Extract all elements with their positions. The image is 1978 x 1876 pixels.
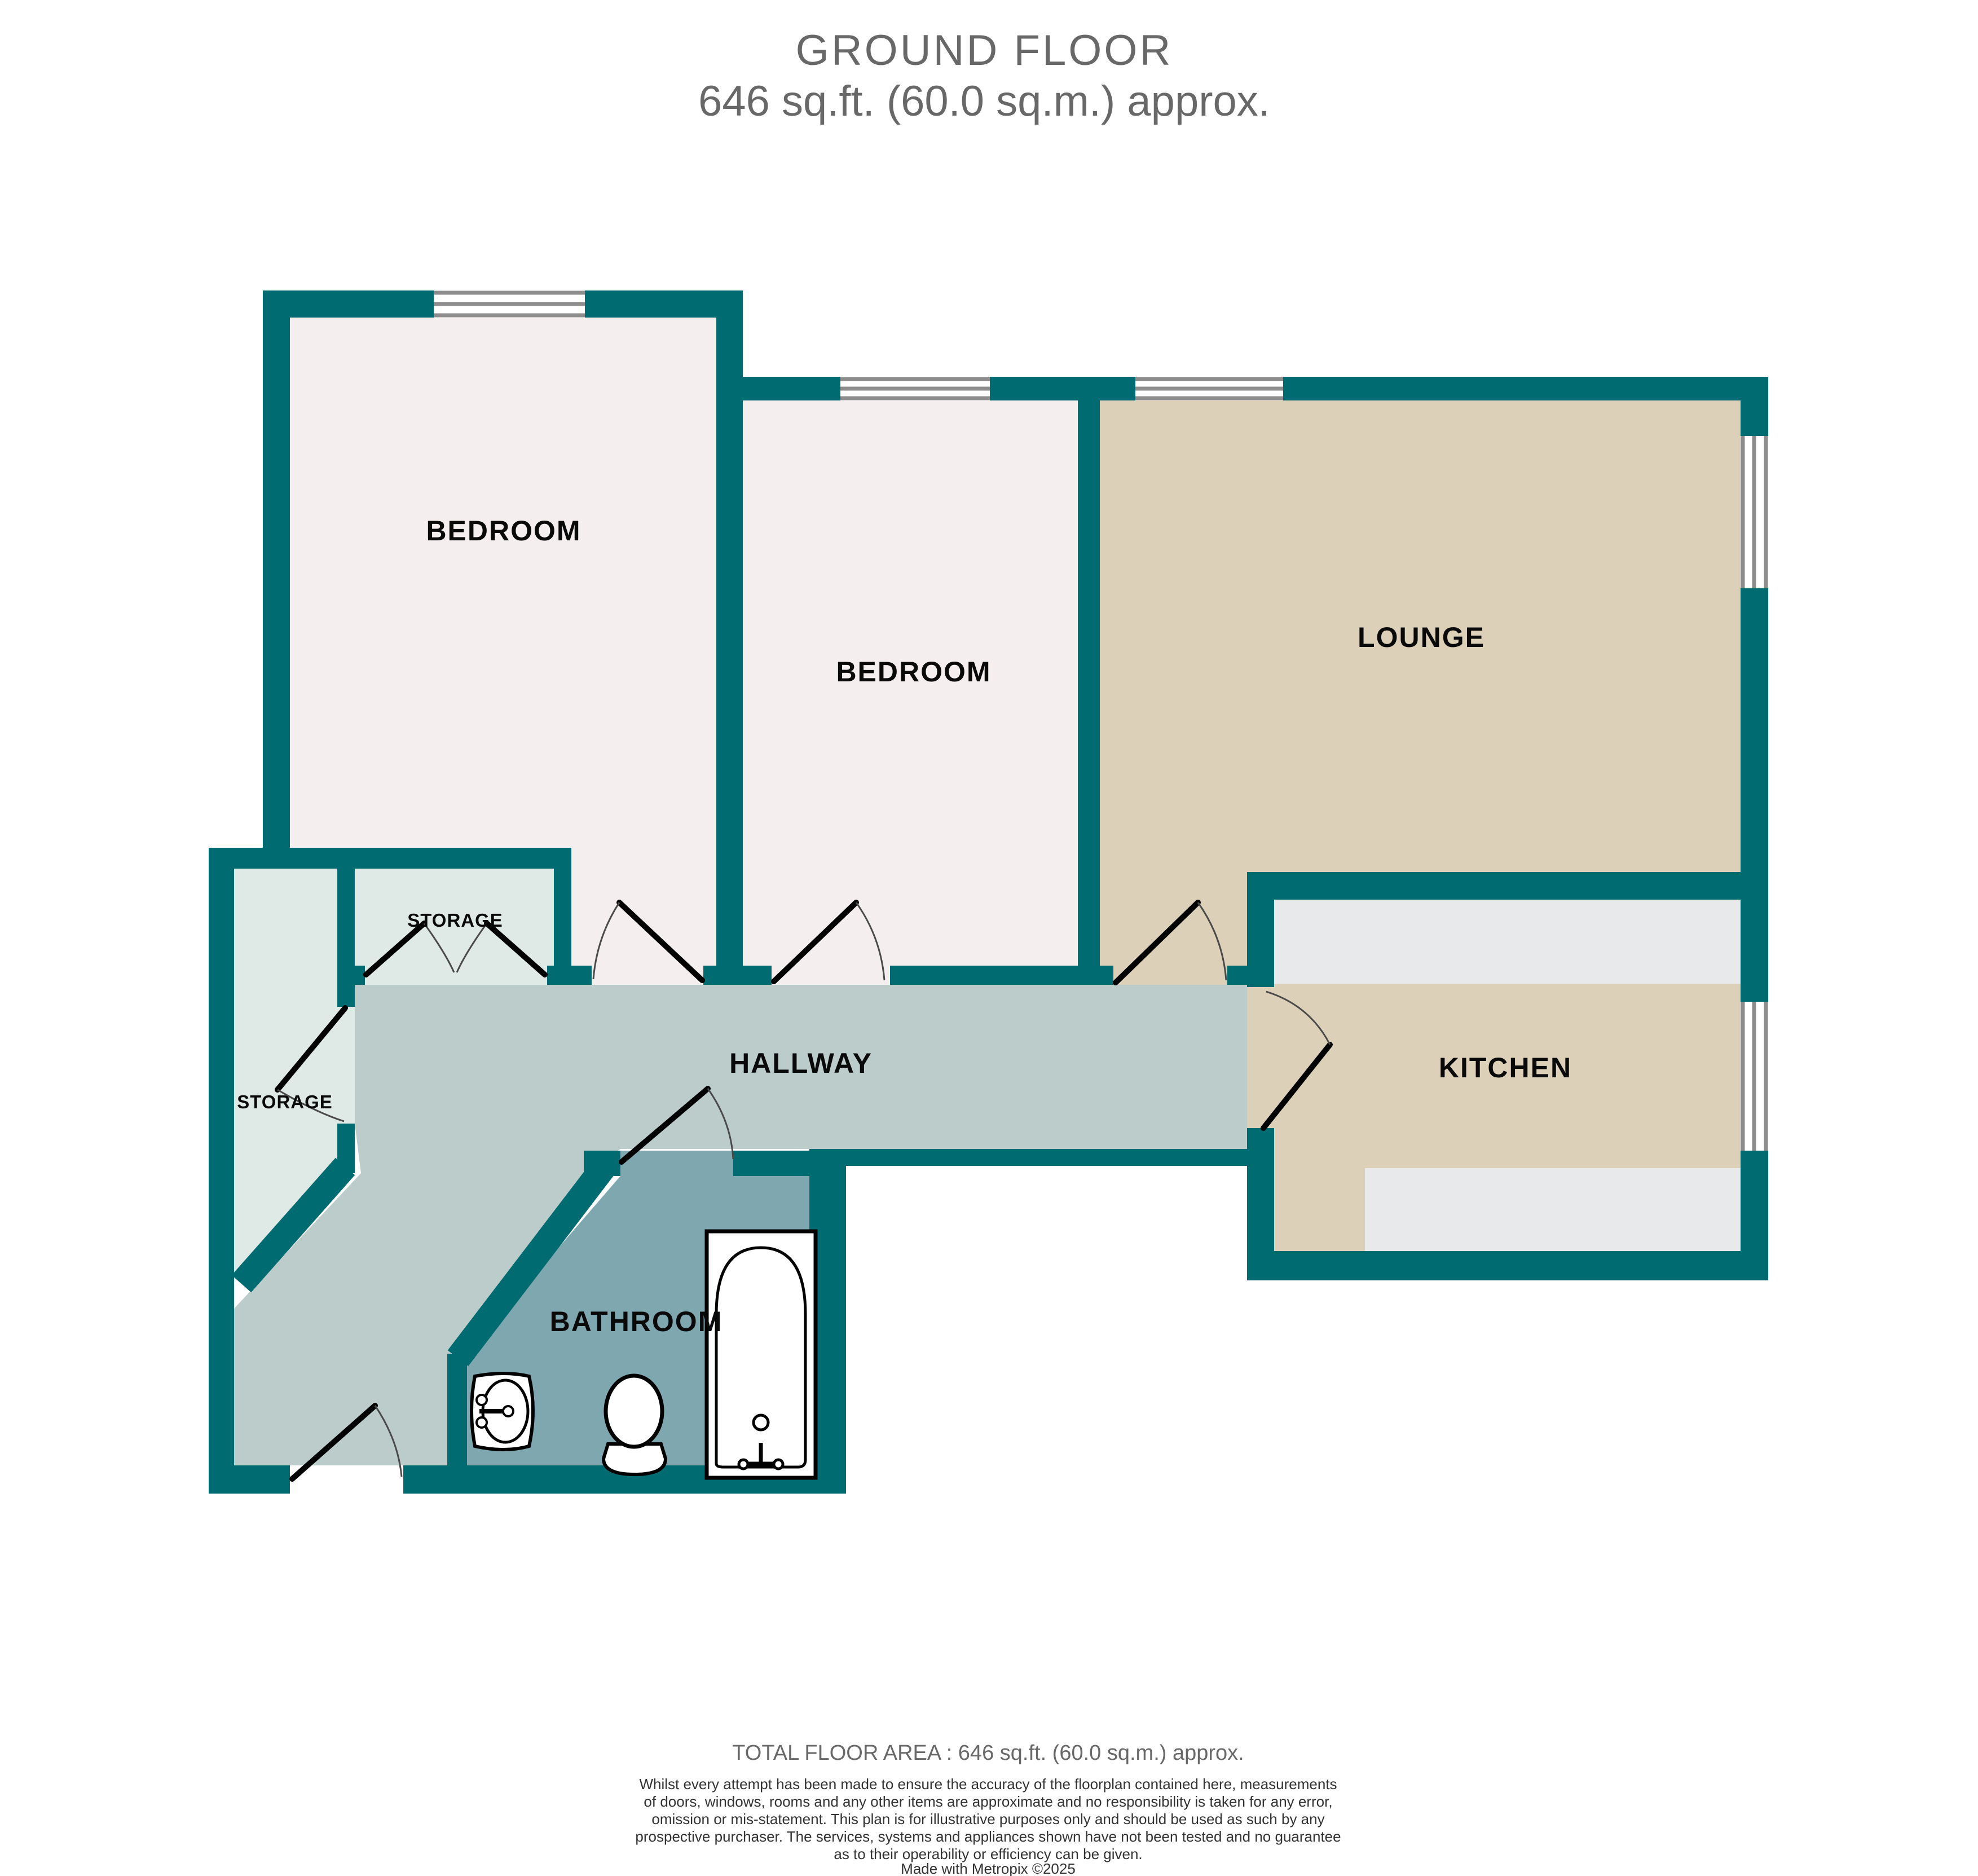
footer-block: TOTAL FLOOR AREA : 646 sq.ft. (60.0 sq.m… [635,1741,1341,1876]
room-label-bedroom-1: BEDROOM [426,515,581,547]
kitchen-window [1741,1002,1768,1151]
floorplan-page: BEDROOM BEDROOM LOUNGE KITCHEN HALLWAY B… [0,0,1978,1876]
kitchen-door-gap-floor [1247,987,1274,1128]
page-subtitle: 646 sq.ft. (60.0 sq.m.) approx. [698,77,1270,125]
lounge-right-window [1741,436,1768,588]
storage-door-gap-floor [337,1007,355,1124]
disclaimer-line-1: Whilst every attempt has been made to en… [639,1776,1337,1793]
floorplan-canvas: BEDROOM BEDROOM LOUNGE KITCHEN HALLWAY B… [0,0,1978,1876]
room-label-bedroom-2: BEDROOM [836,656,991,688]
lounge-top-window [1135,377,1283,400]
bathtub-icon [707,1231,816,1478]
total-floor-area: TOTAL FLOOR AREA : 646 sq.ft. (60.0 sq.m… [732,1741,1244,1765]
bedroom-1-window [434,290,585,318]
disclaimer-line-3: omission or mis-statement. This plan is … [651,1811,1324,1827]
room-bedroom-2-floor [743,400,1078,985]
room-label-bathroom: BATHROOM [550,1306,723,1337]
page-title: GROUND FLOOR [796,27,1173,74]
kitchen-counter-top [1274,900,1741,984]
toilet-icon [603,1376,666,1474]
room-label-hallway: HALLWAY [729,1047,873,1079]
sink-icon [472,1373,533,1450]
room-label-kitchen: KITCHEN [1439,1052,1572,1084]
room-label-lounge: LOUNGE [1358,622,1485,653]
title-block: GROUND FLOOR 646 sq.ft. (60.0 sq.m.) app… [698,27,1270,125]
bedroom-2-window [840,377,990,400]
disclaimer-line-4: prospective purchaser. The services, sys… [635,1828,1341,1845]
metropix-credit: Made with Metropix ©2025 [901,1860,1076,1876]
room-label-storage-small: STORAGE [407,910,503,931]
kitchen-counter-bottom [1365,1168,1741,1251]
room-label-storage-tall: STORAGE [237,1091,333,1112]
disclaimer-line-2: of doors, windows, rooms and any other i… [644,1793,1332,1810]
bathroom-door-gap-floor [620,1151,733,1176]
